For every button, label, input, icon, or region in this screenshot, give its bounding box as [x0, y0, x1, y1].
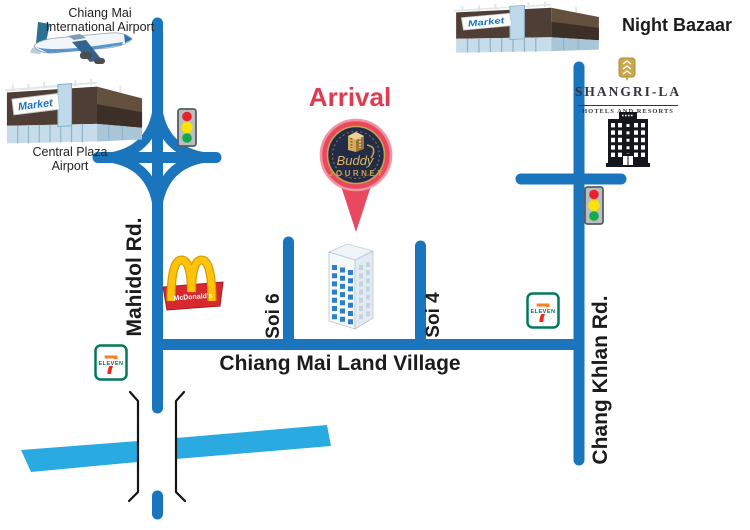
interchange-ramp-se: [158, 158, 206, 206]
arrival-title: Arrival: [309, 82, 391, 113]
traffic-light-icon: [584, 186, 604, 225]
airport-label-line2: International Airport: [46, 21, 154, 35]
tower-building-icon: [326, 236, 378, 334]
central-plaza-label-line1: Central Plaza: [32, 146, 107, 160]
central-plaza-label: Central Plaza Airport: [32, 146, 107, 173]
road-label-mahidol: Mahidol Rd.: [123, 218, 147, 337]
airport-label-line1: Chiang Mai: [46, 7, 154, 21]
eleven-label: ELEVEN: [98, 361, 123, 367]
interchange-ramp-sw: [110, 158, 158, 206]
pin-brand-caps: JOURNEY: [329, 169, 385, 178]
eleven-label: ELEVEN: [530, 309, 555, 315]
direction-map: Market Market: [0, 0, 750, 530]
road-label-soi6: Soi 6: [263, 293, 285, 338]
pin-building-icon: [348, 132, 364, 152]
seven-eleven-icon: 7 7 ELEVEN: [94, 344, 128, 381]
road-label-main: Chiang Mai Land Village: [219, 352, 460, 376]
shangrila-emblem-icon: [617, 56, 637, 82]
arrival-pin-icon: Buddy JOURNEY: [315, 113, 397, 235]
superhighway-east: [176, 425, 331, 459]
road-label-soi4: Soi 4: [423, 292, 445, 337]
central-plaza-label-line2: Airport: [32, 160, 107, 174]
night-bazaar-label: Night Bazaar: [622, 15, 732, 36]
market-building-icon: Market: [452, 0, 602, 62]
airport-label: Chiang Mai International Airport: [46, 7, 154, 34]
seven-eleven-icon: 7 7 ELEVEN: [526, 292, 560, 329]
hotel-building-icon: [602, 110, 654, 170]
market-building-icon: Market: [3, 76, 145, 156]
golden-arches-icon: McDonald's: [160, 250, 228, 315]
shangrila-name: SHANGRI-LA: [553, 84, 703, 100]
road-label-chang-khlan: Chang Khlan Rd.: [589, 295, 613, 464]
superhighway-west: [21, 441, 138, 472]
pin-brand-script: Buddy: [337, 153, 375, 168]
traffic-light-icon: [177, 108, 197, 147]
